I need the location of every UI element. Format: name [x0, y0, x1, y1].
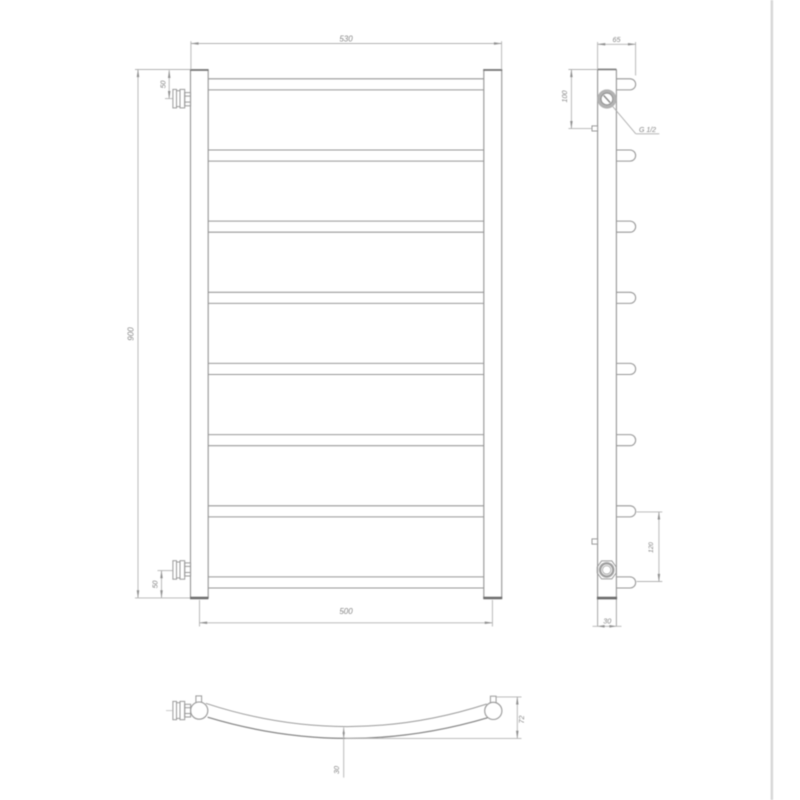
- svg-text:100: 100: [560, 91, 569, 103]
- svg-text:50: 50: [152, 581, 159, 589]
- svg-text:120: 120: [648, 542, 655, 553]
- svg-text:530: 530: [339, 35, 353, 44]
- svg-text:900: 900: [127, 327, 136, 341]
- svg-text:50: 50: [160, 81, 167, 89]
- svg-text:30: 30: [603, 616, 611, 625]
- svg-text:65: 65: [613, 35, 622, 44]
- svg-text:72: 72: [517, 716, 526, 724]
- svg-text:G 1/2: G 1/2: [639, 127, 656, 134]
- svg-text:500: 500: [339, 607, 353, 616]
- svg-text:30: 30: [332, 766, 341, 774]
